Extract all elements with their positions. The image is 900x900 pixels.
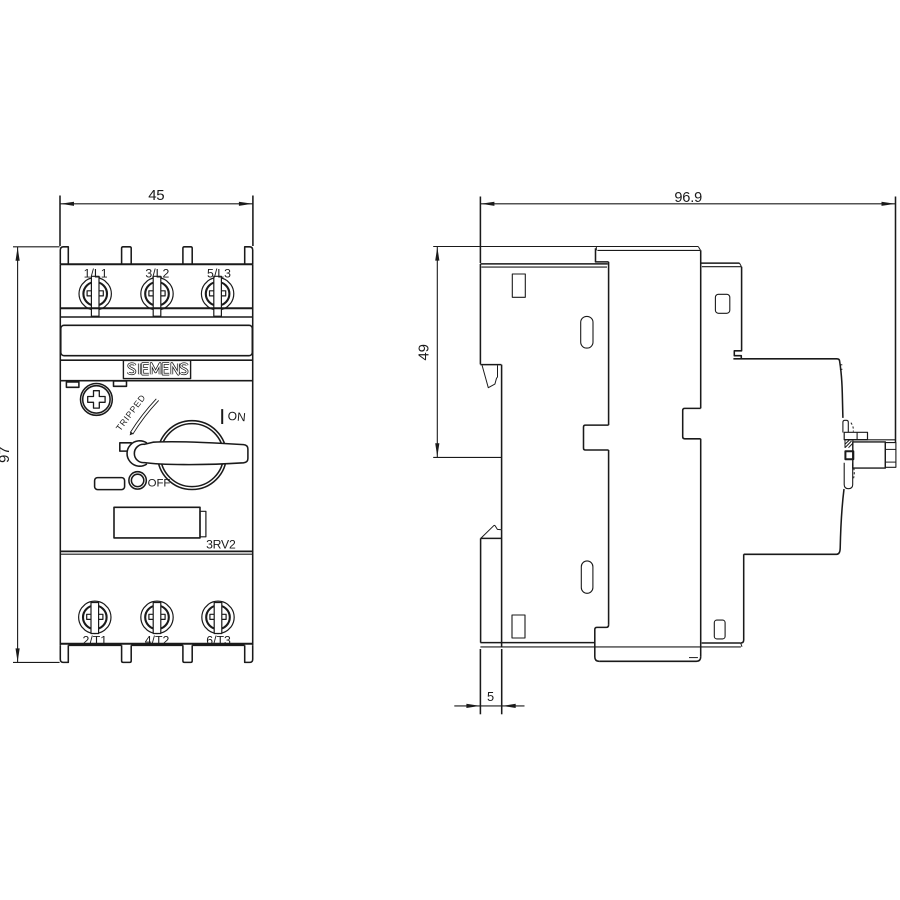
svg-text:ON: ON [227, 409, 246, 425]
svg-text:OFF: OFF [148, 478, 171, 490]
svg-text:97: 97 [0, 446, 13, 463]
svg-text:49: 49 [416, 344, 433, 361]
svg-text:5/L3: 5/L3 [207, 266, 231, 280]
svg-text:3RV2: 3RV2 [206, 537, 236, 551]
svg-text:5: 5 [487, 689, 494, 704]
svg-text:96.9: 96.9 [674, 190, 702, 206]
svg-text:4/T2: 4/T2 [145, 633, 170, 647]
svg-text:2/T1: 2/T1 [82, 633, 107, 647]
svg-text:1/L1: 1/L1 [84, 266, 108, 280]
svg-text:3/L2: 3/L2 [145, 266, 169, 280]
svg-text:TRIPPED: TRIPPED [114, 392, 148, 432]
svg-text:45: 45 [148, 187, 164, 204]
svg-text:6/T3: 6/T3 [206, 633, 231, 647]
